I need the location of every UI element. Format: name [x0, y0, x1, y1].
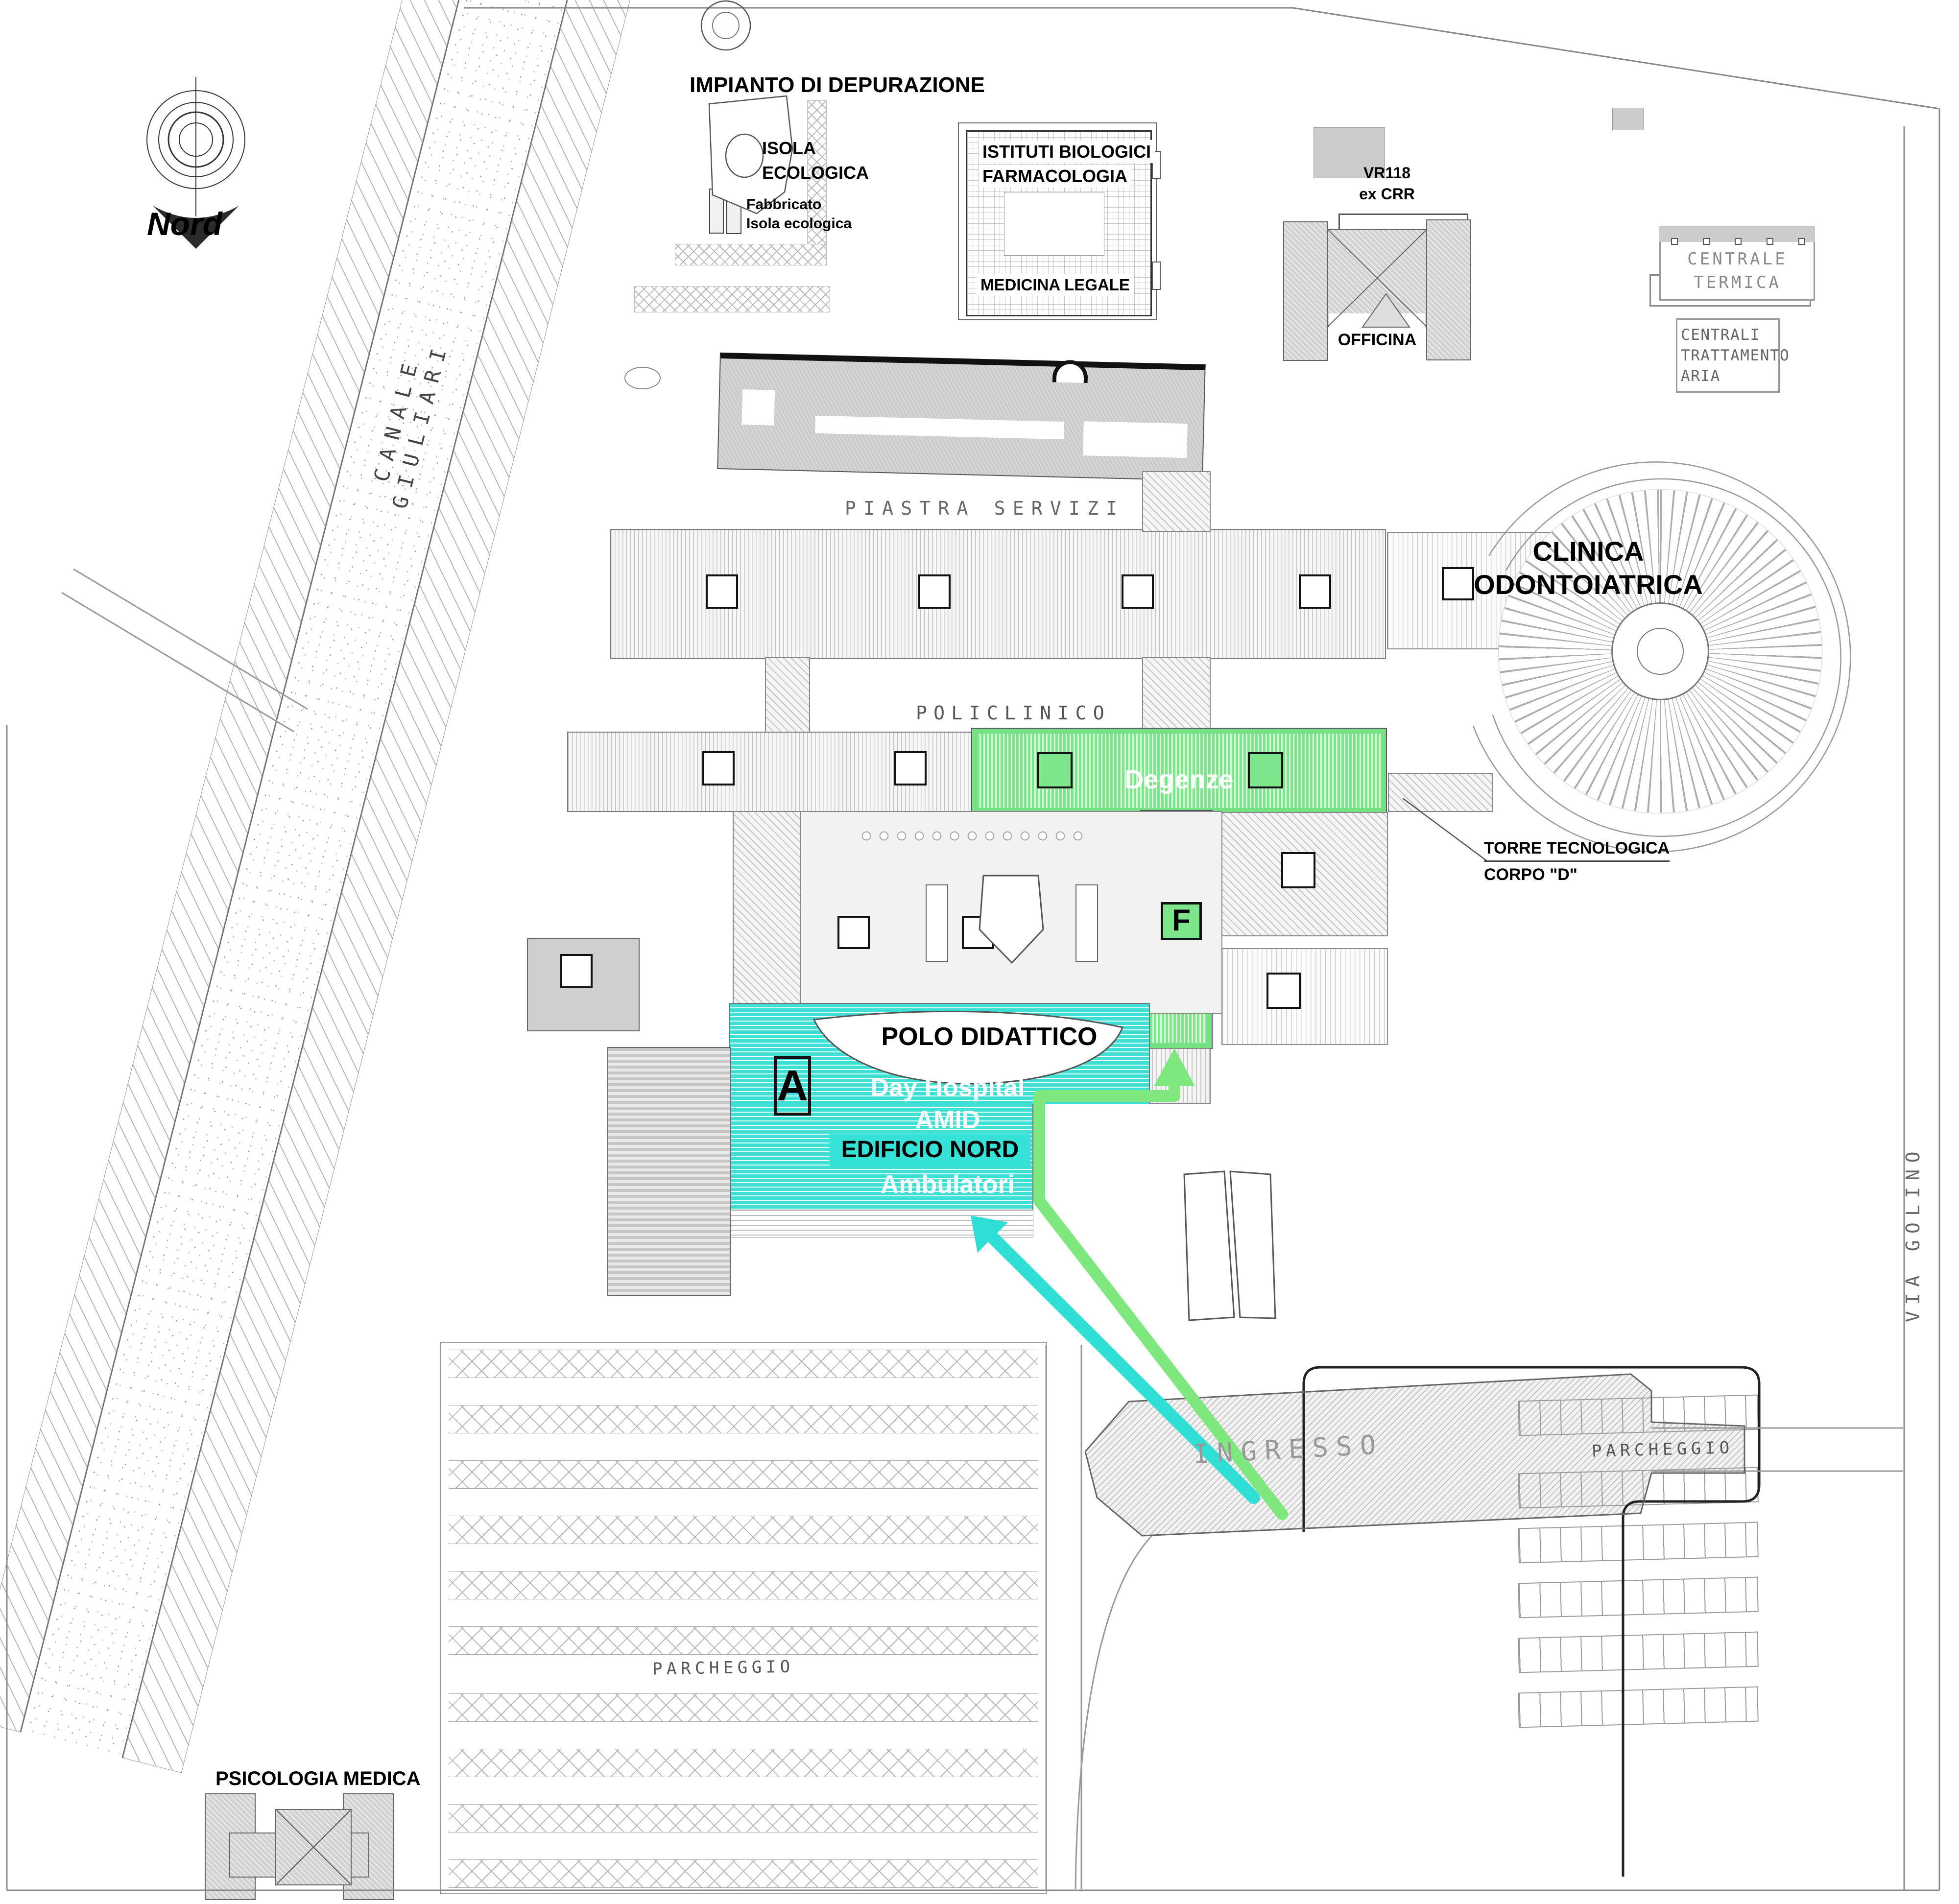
- istituti-tab-2: [1152, 262, 1161, 290]
- ct-vent-1: [1671, 238, 1678, 245]
- vr118-label: VR118 ex CRR: [1343, 163, 1431, 205]
- parking-east-row-4: [1518, 1577, 1759, 1618]
- parking-west-row: [449, 1571, 1038, 1599]
- ambulatori-label: Ambulatori: [833, 1169, 1063, 1200]
- small-building-topright: [1612, 108, 1644, 130]
- corpo-d-label: CORPO "D": [1484, 865, 1577, 885]
- parcheggio-ovest-label: PARCHEGGIO: [652, 1657, 794, 1679]
- officina-roof-center: [1327, 229, 1427, 327]
- piastra-slot-2: [815, 416, 1064, 439]
- piastra-servizi-label: PIASTRA SERVIZI: [845, 498, 1124, 520]
- band-b-core-2: [894, 751, 927, 785]
- band-a-core-1: [706, 574, 738, 609]
- cluster-bar-2: [1075, 884, 1098, 962]
- badge-f: F: [1161, 902, 1202, 940]
- band-a-core-2: [918, 574, 951, 609]
- parking-west-row: [449, 1804, 1038, 1833]
- connector-west: [765, 657, 810, 734]
- psicologia-center: [275, 1809, 352, 1885]
- isola-label: ISOLA ECOLOGICA: [762, 136, 899, 186]
- fabbricato-label: Fabbricato Isola ecologica: [746, 195, 884, 233]
- policlinico-label: POLICLINICO: [916, 702, 1111, 725]
- walkway-chain-horizontal-2: [634, 286, 830, 312]
- edificio-nord-base: [729, 1210, 1033, 1238]
- parking-east-row-5: [1518, 1632, 1759, 1673]
- officina-label: OFFICINA: [1333, 330, 1421, 350]
- parking-west-lot: [440, 1342, 1047, 1894]
- ct-vent-4: [1767, 238, 1773, 245]
- centrale-termica-label: CENTRALE TERMICA: [1665, 248, 1810, 294]
- parking-west-row: [449, 1516, 1038, 1544]
- parking-east-row-2: [1518, 1467, 1759, 1509]
- amid-label: AMID: [833, 1105, 1063, 1135]
- ct-vent-3: [1735, 238, 1742, 245]
- parking-west-row: [449, 1405, 1038, 1433]
- impianto-label: IMPIANTO DI DEPURAZIONE: [690, 72, 1140, 98]
- day-hospital-label: Day Hospital: [833, 1072, 1063, 1103]
- corpo-d-core-2: [1266, 973, 1301, 1009]
- parking-west-row: [449, 1859, 1038, 1888]
- badge-a: A: [774, 1056, 811, 1116]
- west-annex-building: [607, 1047, 731, 1296]
- band-b-core-1: [702, 751, 735, 785]
- piastra-servizi-building: [717, 353, 1206, 481]
- istituti-label: ISTITUTI BIOLOGICI: [979, 140, 1155, 163]
- band-a-core-3: [1122, 574, 1154, 609]
- parking-west-row: [449, 1350, 1038, 1378]
- cluster-bar-1: [926, 884, 948, 962]
- medicina-label: MEDICINA LEGALE: [977, 274, 1134, 296]
- farmacologia-label: FARMACOLOGIA: [979, 165, 1131, 188]
- band-a-core-4: [1299, 574, 1331, 609]
- west-gray-core: [560, 954, 593, 988]
- piastra-slot-3: [1083, 421, 1188, 458]
- degenze-label: Degenze: [972, 764, 1386, 796]
- colonnade: [858, 823, 1091, 849]
- fabbricato-building-1: [709, 189, 724, 234]
- istituti-courtyard: [1004, 192, 1104, 256]
- edificio-nord-band: EDIFICIO NORD: [830, 1134, 1030, 1166]
- connector-central-mid: [1142, 657, 1211, 734]
- ct-vent-5: [1798, 238, 1805, 245]
- officina-wing-right: [1426, 219, 1471, 360]
- parking-west-row: [449, 1626, 1038, 1655]
- via-golino-label: VIA GOLINO: [1902, 1136, 1925, 1322]
- centrali-aria-label: CENTRALI TRATTAMENTO ARIA: [1681, 325, 1790, 387]
- parcheggio-est-label: PARCHEGGIO: [1592, 1438, 1734, 1461]
- site-plan-map: CANALE GIULIARI: [0, 0, 1959, 1904]
- parking-west-row: [449, 1749, 1038, 1777]
- clinic-inner-core: [1637, 628, 1684, 675]
- psicologia-label: PSICOLOGIA MEDICA: [215, 1767, 421, 1790]
- walkway-chain-horizontal-1: [675, 244, 827, 265]
- f-wing-connector: [1142, 1048, 1211, 1104]
- cluster-core-1: [837, 916, 870, 949]
- parking-east-row-1: [1518, 1395, 1759, 1436]
- parking-west-row: [449, 1460, 1038, 1489]
- central-cluster-west-strip: [733, 811, 801, 1014]
- ct-vent-2: [1703, 238, 1710, 245]
- parking-west-row: [449, 1693, 1038, 1722]
- corpo-d-lower: [1221, 948, 1388, 1045]
- torre-building: [1388, 773, 1493, 812]
- torre-label: TORRE TECNOLOGICA: [1484, 838, 1670, 862]
- corridor-core: [1442, 567, 1474, 600]
- piastra-arch: [1052, 360, 1088, 383]
- clinica-label: CLINICA ODONTOIATRICA: [1473, 535, 1703, 602]
- compass-label: Nord: [147, 205, 264, 243]
- cluster-core-2: [962, 916, 994, 949]
- piastra-slot-1: [741, 389, 775, 426]
- officina-wing-left: [1283, 221, 1328, 361]
- parking-east-row-6: [1518, 1687, 1759, 1728]
- corpo-d-core-1: [1281, 852, 1315, 888]
- parking-east-row-3: [1518, 1522, 1759, 1564]
- fabbricato-building-2: [726, 190, 741, 234]
- polo-didattico-label: POLO DIDATTICO: [877, 1022, 1102, 1052]
- connector-central-upper: [1142, 471, 1211, 532]
